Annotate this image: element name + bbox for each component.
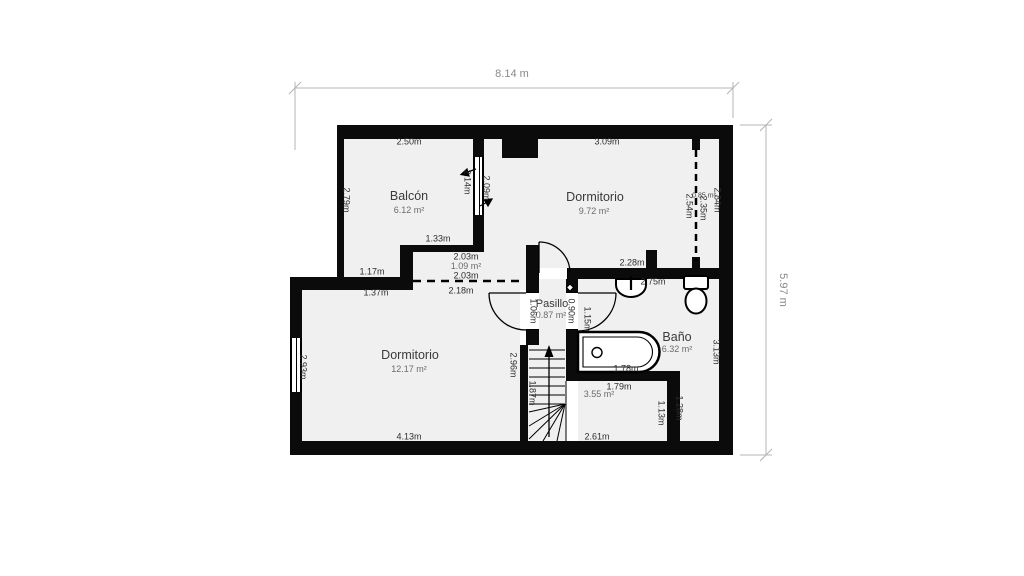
room-bano-strip — [680, 371, 719, 441]
measure-label: 1.17m — [359, 268, 384, 277]
dimension-line-right — [740, 119, 772, 461]
measure-label: 1.28m — [675, 395, 684, 420]
measure-label: 2.54m — [685, 193, 694, 218]
wall-pier — [646, 250, 657, 268]
room-label-pasillo: Pasillo — [536, 298, 568, 310]
measure-label: 2.03m — [453, 253, 478, 262]
room-area-pasillo: 0.87 m² — [536, 310, 567, 320]
measure-label: 3.13m — [712, 339, 721, 364]
measure-label: 0.90m — [567, 298, 576, 323]
doorway — [538, 268, 568, 279]
wall — [290, 441, 733, 455]
total-width-label: 8.14 m — [495, 68, 529, 80]
wardrobe-stub — [692, 139, 700, 150]
measure-label: 2.75m — [640, 278, 665, 287]
wall — [400, 245, 413, 290]
wardrobe-stub — [692, 257, 700, 268]
floorplan-canvas: 8.14 m 5.97 m Balcón 6.12 m² Dormitorio … — [0, 0, 1024, 576]
measure-label: 2.79m — [342, 187, 351, 212]
chimney-block — [502, 139, 538, 158]
measure-label: 2.93m — [299, 354, 308, 379]
measure-label: 1.37m — [363, 289, 388, 298]
measure-label: 1.87m — [528, 380, 537, 405]
measure-label: 1.79m — [606, 383, 631, 392]
room-area-closet: 1.09 m² — [451, 261, 482, 271]
wall — [719, 125, 733, 455]
measure-label: 2.50m — [396, 138, 421, 147]
measure-label: 1.78m — [613, 365, 638, 374]
measure-label: 3.09m — [594, 138, 619, 147]
room-label-dormitorio-top: Dormitorio — [566, 190, 624, 204]
measure-label: 1.13m — [657, 400, 666, 425]
measure-label: 2.35m — [699, 195, 708, 220]
room-area-balcon: 6.12 m² — [394, 205, 425, 215]
wall — [526, 268, 538, 279]
measure-label: 2.61m — [584, 433, 609, 442]
measure-label: 4.13m — [396, 433, 421, 442]
room-area-dormitorio-bottom: 12.17 m² — [391, 364, 427, 374]
measure-label: 2.03m — [453, 272, 478, 281]
wall — [290, 277, 413, 290]
measure-label: 2.84m — [713, 187, 722, 212]
room-label-dormitorio-bottom: Dormitorio — [381, 348, 439, 362]
measure-label: 2.96m — [509, 352, 518, 377]
wall — [526, 330, 539, 345]
room-area-bano: 6.32 m² — [662, 344, 693, 354]
room-area-dormitorio-top: 9.72 m² — [579, 206, 610, 216]
room-label-balcon: Balcón — [390, 189, 428, 203]
measure-label: 1.33m — [425, 235, 450, 244]
room-label-bano: Baño — [662, 330, 691, 344]
total-height-label: 5.97 m — [777, 273, 789, 307]
measure-label: 2.28m — [619, 259, 644, 268]
measure-label: 1.06m — [529, 298, 538, 323]
measure-label: 2.09m — [482, 175, 491, 200]
measure-label: 1.15m — [583, 306, 592, 331]
measure-label: 2.14m — [463, 169, 472, 194]
wall — [473, 125, 484, 157]
measure-label: 2.18m — [448, 287, 473, 296]
room-bano — [578, 279, 719, 371]
